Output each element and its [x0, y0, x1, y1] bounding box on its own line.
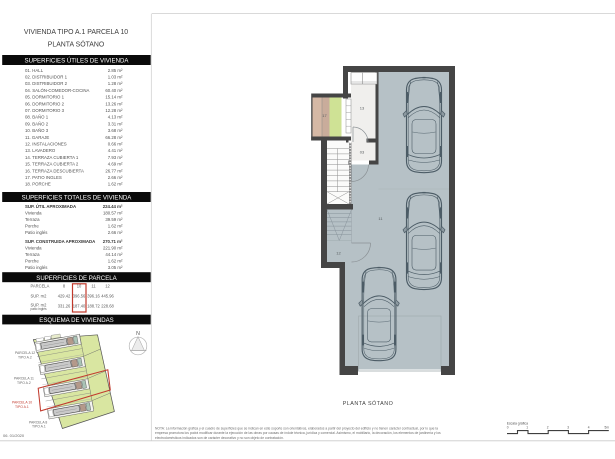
svg-text:12.28 m²: 12.28 m²	[105, 108, 123, 113]
svg-text:0.66 m²: 0.66 m²	[108, 142, 123, 147]
svg-text:7.93 m²: 7.93 m²	[108, 155, 123, 160]
svg-text:17. PATIO INGLES: 17. PATIO INGLES	[25, 175, 62, 180]
svg-text:SUP. CONSTRUIDA APROXIMADA: SUP. CONSTRUIDA APROXIMADA	[25, 239, 96, 244]
svg-text:03: 03	[360, 150, 365, 155]
svg-text:SUPERFICIES ÚTILES DE VIVIENDA: SUPERFICIES ÚTILES DE VIVIENDA	[25, 58, 130, 65]
svg-text:13.26 m²: 13.26 m²	[105, 101, 123, 106]
svg-text:17: 17	[322, 113, 327, 118]
svg-text:1: 1	[526, 425, 528, 429]
svg-text:TIPO A.1: TIPO A.1	[32, 425, 46, 429]
svg-text:ESQUEMA DE VIVIENDAS: ESQUEMA DE VIVIENDAS	[39, 317, 114, 324]
svg-text:2: 2	[547, 425, 549, 429]
svg-text:PLANTA SÓTANO: PLANTA SÓTANO	[343, 400, 394, 407]
svg-text:VIVIENDA TIPO A.1 PARCELA 10: VIVIENDA TIPO A.1 PARCELA 10	[24, 29, 128, 36]
svg-text:05. DORMITORIO 1: 05. DORMITORIO 1	[25, 95, 65, 100]
svg-text:60.40 m²: 60.40 m²	[105, 88, 123, 93]
svg-text:Porche: Porche	[25, 224, 39, 229]
svg-text:187.40: 187.40	[73, 303, 86, 308]
svg-text:188.72: 188.72	[87, 303, 100, 308]
svg-text:4.13 m²: 4.13 m²	[108, 115, 123, 120]
svg-text:TIPO A.2: TIPO A.2	[17, 381, 31, 385]
svg-text:07. DORMITORIO 3: 07. DORMITORIO 3	[25, 108, 65, 113]
svg-text:445.96: 445.96	[101, 294, 114, 299]
svg-text:Terraza: Terraza	[25, 217, 40, 222]
svg-text:1.62 m²: 1.62 m²	[108, 224, 123, 229]
svg-text:03. DISTRIBUIDOR 2: 03. DISTRIBUIDOR 2	[25, 81, 68, 86]
svg-text:270.71 m²: 270.71 m²	[103, 239, 123, 244]
svg-text:1.03 m²: 1.03 m²	[108, 75, 123, 80]
svg-text:12. INSTALACIONES: 12. INSTALACIONES	[25, 142, 67, 147]
svg-text:4: 4	[588, 425, 590, 429]
svg-text:13: 13	[360, 106, 365, 111]
svg-text:26.77 m²: 26.77 m²	[105, 168, 123, 173]
svg-text:09. BAÑO 2: 09. BAÑO 2	[25, 121, 49, 126]
svg-text:180.57 m²: 180.57 m²	[103, 211, 123, 216]
svg-text:15. TERRAZA CUBIERTA 2: 15. TERRAZA CUBIERTA 2	[25, 162, 79, 167]
svg-text:patio inglés: patio inglés	[31, 307, 48, 311]
svg-text:224.44 m²: 224.44 m²	[103, 204, 123, 209]
svg-text:1.28 m²: 1.28 m²	[108, 81, 123, 86]
svg-text:TIPO A.2: TIPO A.2	[18, 355, 32, 359]
svg-text:14. TERRAZA CUBIERTA 1: 14. TERRAZA CUBIERTA 1	[25, 155, 79, 160]
svg-text:Terraza: Terraza	[25, 252, 40, 257]
svg-text:4.41 m²: 4.41 m²	[108, 148, 123, 153]
svg-text:11. GARAJE: 11. GARAJE	[25, 135, 49, 140]
svg-text:429.42: 429.42	[58, 294, 71, 299]
svg-text:N: N	[136, 331, 140, 337]
svg-text:01. HALL: 01. HALL	[25, 68, 44, 73]
svg-text:SUPERFICIES TOTALES DE VIVIEND: SUPERFICIES TOTALES DE VIVIENDA	[22, 195, 133, 202]
svg-text:3.31 m²: 3.31 m²	[108, 121, 123, 126]
svg-text:Patio inglés: Patio inglés	[25, 265, 48, 270]
svg-text:5m: 5m	[605, 425, 610, 429]
svg-text:Vivienda: Vivienda	[25, 246, 42, 251]
svg-text:SUP. ÚTIL APROXIMADA: SUP. ÚTIL APROXIMADA	[25, 204, 77, 209]
svg-text:06. 01/2020: 06. 01/2020	[3, 433, 25, 438]
svg-text:electrodomésticos indicados so: electrodomésticos indicados son de carác…	[155, 436, 284, 440]
svg-text:221.90 m²: 221.90 m²	[103, 246, 123, 251]
svg-text:PARCELA 12: PARCELA 12	[15, 351, 35, 355]
svg-text:2.85 m²: 2.85 m²	[108, 68, 123, 73]
svg-text:39.59 m²: 39.59 m²	[105, 217, 123, 222]
svg-text:12: 12	[105, 284, 110, 289]
svg-text:396.16: 396.16	[87, 294, 100, 299]
svg-text:TIPO A.1: TIPO A.1	[15, 405, 29, 409]
svg-text:1.62 m²: 1.62 m²	[108, 182, 123, 187]
svg-text:Porche: Porche	[25, 259, 39, 264]
svg-text:3.05 m²: 3.05 m²	[108, 265, 123, 270]
svg-text:331.26: 331.26	[58, 303, 71, 308]
svg-text:18. PORCHE: 18. PORCHE	[25, 182, 51, 187]
svg-text:PARCELA 10: PARCELA 10	[12, 401, 32, 405]
svg-text:08. BAÑO 1: 08. BAÑO 1	[25, 115, 49, 120]
svg-text:396.56: 396.56	[73, 294, 86, 299]
svg-text:0: 0	[507, 425, 509, 429]
svg-text:SUP. m2: SUP. m2	[31, 294, 48, 299]
svg-text:empresa promotora los podrá mo: empresa promotora los podrá modificar du…	[155, 431, 441, 435]
svg-text:66.28 m²: 66.28 m²	[105, 135, 123, 140]
svg-text:228.68: 228.68	[101, 303, 114, 308]
svg-text:13. LAVADERO: 13. LAVADERO	[25, 148, 56, 153]
svg-text:SUPERFICIES DE PARCELA: SUPERFICIES DE PARCELA	[36, 275, 117, 282]
svg-text:3.68 m²: 3.68 m²	[108, 128, 123, 133]
svg-text:3: 3	[567, 425, 569, 429]
svg-text:2.66 m²: 2.66 m²	[108, 230, 123, 235]
svg-text:15.14 m²: 15.14 m²	[105, 95, 123, 100]
svg-text:Patio inglés: Patio inglés	[25, 230, 48, 235]
svg-text:2.66 m²: 2.66 m²	[108, 175, 123, 180]
svg-text:16. TERRAZA DESCUBIERTA: 16. TERRAZA DESCUBIERTA	[25, 168, 84, 173]
svg-text:04. SALÓN-COMEDOR-COCINA: 04. SALÓN-COMEDOR-COCINA	[25, 88, 90, 93]
svg-text:Vivienda: Vivienda	[25, 211, 42, 216]
svg-text:12: 12	[336, 251, 341, 256]
svg-text:PARCELA 8: PARCELA 8	[29, 420, 47, 424]
svg-text:PARCELA 11: PARCELA 11	[14, 377, 34, 381]
svg-text:44.14 m²: 44.14 m²	[105, 252, 123, 257]
svg-text:10. BAÑO 3: 10. BAÑO 3	[25, 128, 49, 133]
svg-text:4.69 m²: 4.69 m²	[108, 162, 123, 167]
svg-text:NOTA: La información gráfica y: NOTA: La información gráfica y el cuadro…	[155, 427, 438, 431]
svg-text:Escala gráfica: Escala gráfica	[507, 422, 528, 426]
svg-text:PARCELA: PARCELA	[31, 284, 50, 289]
svg-text:02. DISTRIBUIDOR 1: 02. DISTRIBUIDOR 1	[25, 75, 68, 80]
svg-text:PLANTA SÓTANO: PLANTA SÓTANO	[48, 40, 105, 49]
svg-text:11: 11	[91, 284, 96, 289]
svg-text:1.62 m²: 1.62 m²	[108, 259, 123, 264]
svg-text:06. DORMITORIO 2: 06. DORMITORIO 2	[25, 101, 65, 106]
